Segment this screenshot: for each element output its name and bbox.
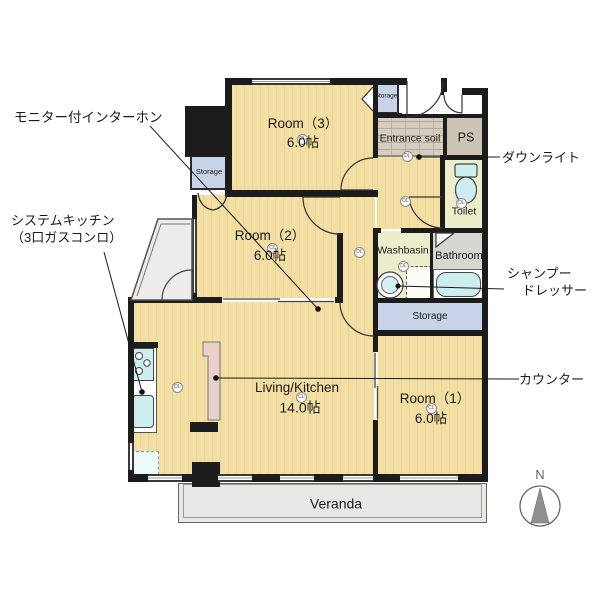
side-balcony <box>131 219 192 300</box>
room-1-name: Room（1） <box>400 392 471 406</box>
downlight-icon: DL <box>400 196 411 207</box>
living-kitchen-name: Living/Kitchen <box>255 381 339 395</box>
system-kitchen-annotation-line2: （3口ガスコンロ） <box>11 230 122 247</box>
downlight-annotation: ダウンライト <box>502 150 580 167</box>
room-3-name: Room（3） <box>268 117 339 131</box>
room-3-size: 6.0帖 <box>287 136 319 150</box>
entrance-label: Entrance soil <box>380 133 441 144</box>
bathroom-door-icon <box>436 233 454 247</box>
double-door-icon <box>198 193 227 210</box>
storage-entry-label: Storage <box>375 94 398 101</box>
veranda-label: Veranda <box>310 497 362 512</box>
storage-hall-label: Storage <box>412 312 447 323</box>
room-2-size: 6.0帖 <box>254 249 286 263</box>
north-label: N <box>535 468 544 482</box>
shampoo-dresser-annotation: シャンプー ドレッサー <box>507 266 587 300</box>
toilet-icon <box>455 164 477 203</box>
bifold-door-icon <box>362 87 373 111</box>
living-kitchen-size: 14.0帖 <box>279 401 320 416</box>
north-compass-icon <box>520 486 560 526</box>
washbasin-label: Washbasin <box>377 245 429 256</box>
toilet-label: Toilet <box>452 206 477 217</box>
room-1-size: 6.0帖 <box>415 412 447 426</box>
downlight-icon: DL <box>398 261 409 272</box>
downlight-icon: DL <box>402 151 413 162</box>
room-2-name: Room（2） <box>235 229 306 243</box>
system-kitchen-annotation: システムキッチン （3口ガスコンロ） <box>11 213 122 247</box>
storage-upper-left-label: Storage <box>196 168 222 176</box>
downlight-icon: DL <box>354 247 365 258</box>
burner-circles <box>136 353 151 375</box>
bathroom-label: Bathroom <box>435 251 483 263</box>
ps-label: PS <box>458 131 475 144</box>
counter-annotation: カウンター <box>519 372 584 389</box>
downlight-icon: DL <box>172 382 183 393</box>
intercom-annotation: モニター付インターホン <box>14 109 163 127</box>
floor-plan: CL CL CL CL DL DL DL DL DL DL Room（3） 6.… <box>0 0 600 600</box>
plan-annotations-overlay <box>0 0 600 600</box>
shampoo-dresser-annotation-line1: シャンプー <box>507 266 587 283</box>
system-kitchen-annotation-line1: システムキッチン <box>11 213 122 230</box>
counter-icon <box>203 342 220 420</box>
shampoo-dresser-annotation-line2: ドレッサー <box>507 283 587 300</box>
